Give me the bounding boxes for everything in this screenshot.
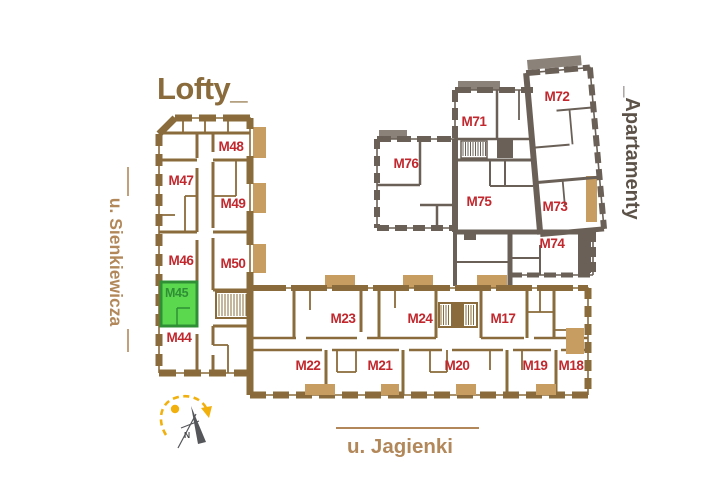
balcony — [381, 384, 399, 395]
balcony — [586, 176, 597, 222]
balcony — [253, 183, 266, 213]
compass: N — [161, 396, 212, 448]
balcony — [456, 384, 476, 395]
elevator — [497, 140, 513, 158]
elevator — [451, 303, 464, 327]
unit-label-m73[interactable]: M73 — [542, 199, 568, 214]
street-label-south: u. Jagienki — [347, 435, 453, 458]
wall-slab — [578, 231, 591, 273]
compass-dot — [171, 405, 179, 413]
unit-label-m46[interactable]: M46 — [168, 253, 194, 268]
unit-label-m72[interactable]: M72 — [544, 89, 569, 104]
unit-label-m21[interactable]: M21 — [367, 358, 393, 373]
unit-label-m24[interactable]: M24 — [407, 311, 433, 326]
apartamenty-title: _Apartamenty — [621, 85, 643, 220]
unit-label-m22[interactable]: M22 — [295, 358, 320, 373]
unit-label-m71[interactable]: M71 — [461, 114, 487, 129]
unit-label-m74[interactable]: M74 — [539, 236, 565, 251]
floor-plan-svg: M71 M72 M73 M74 M75 M76 M45 M48 M47 M49 … — [0, 0, 707, 500]
compass-needle-icon — [191, 406, 206, 444]
unit-label-m76[interactable]: M76 — [393, 156, 419, 171]
street-south: u. Jagienki — [336, 428, 479, 458]
unit-label-m44[interactable]: M44 — [166, 330, 192, 345]
unit-label-m47[interactable]: M47 — [168, 173, 193, 188]
unit-label-m48[interactable]: M48 — [218, 139, 244, 154]
balcony — [253, 127, 266, 158]
unit-label-m23[interactable]: M23 — [330, 311, 356, 326]
balcony — [566, 328, 584, 354]
wall-slab — [464, 231, 476, 240]
street-label-west: u. Sienkiewicza — [106, 198, 126, 327]
apartamenty-building: M71 M72 M73 M74 M75 M76 — [377, 55, 604, 288]
unit-label-m20[interactable]: M20 — [444, 358, 469, 373]
unit-label-m50[interactable]: M50 — [220, 256, 245, 271]
floor-plan-page: M71 M72 M73 M74 M75 M76 M45 M48 M47 M49 … — [0, 0, 707, 500]
unit-label-m17[interactable]: M17 — [490, 311, 515, 326]
compass-arc-arrowhead — [201, 406, 212, 418]
balcony — [305, 384, 335, 395]
compass-north-label: N — [184, 430, 190, 440]
lofty-building: M45 M48 M47 M49 M46 M50 M44 — [159, 118, 266, 395]
unit-label-m75[interactable]: M75 — [466, 194, 492, 209]
unit-label-m18[interactable]: M18 — [558, 358, 584, 373]
balcony — [253, 244, 266, 273]
lofty-title: Lofty_ — [157, 71, 248, 106]
unit-label-m49[interactable]: M49 — [220, 196, 245, 211]
unit-label-m45[interactable]: M45 — [165, 286, 189, 300]
jagienki-wing: M23 M24 M17 M22 M21 M20 M19 M18 — [250, 275, 588, 395]
unit-label-m19[interactable]: M19 — [522, 358, 547, 373]
street-west: u. Sienkiewicza — [106, 167, 128, 352]
balcony — [536, 384, 556, 395]
